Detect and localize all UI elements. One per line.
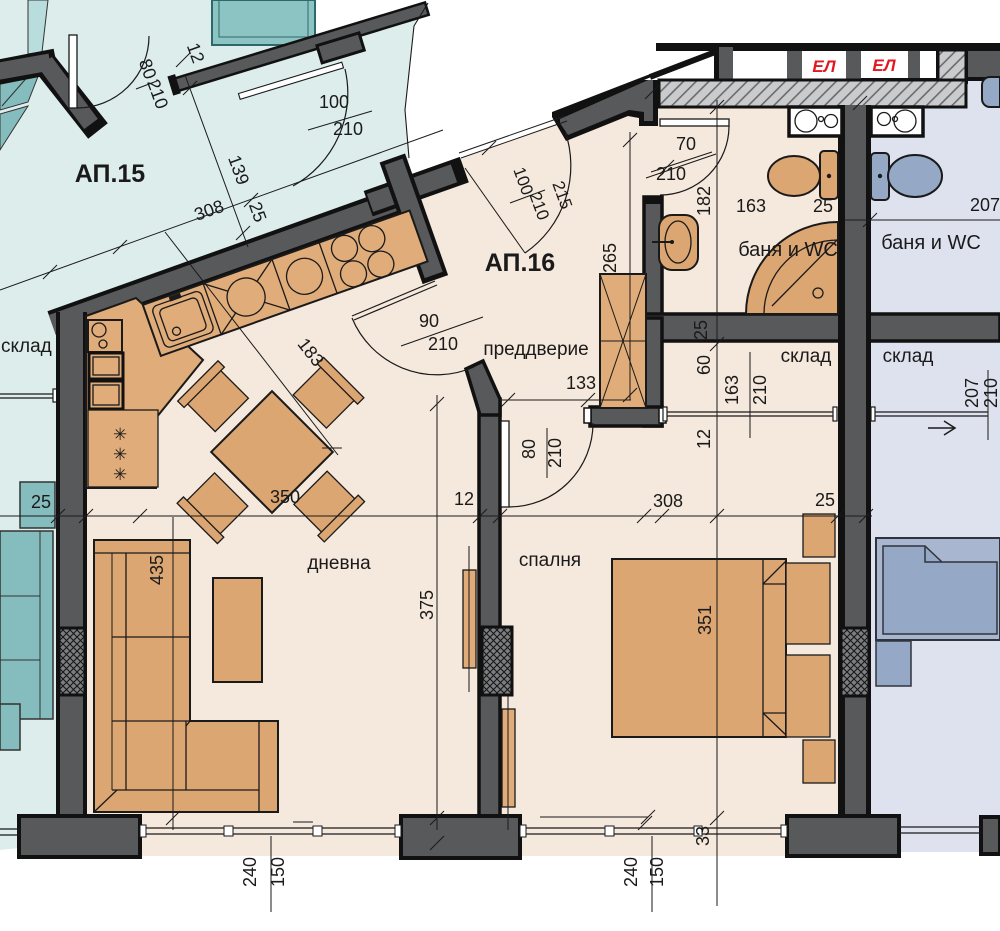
svg-text:308: 308 — [653, 491, 683, 511]
svg-text:90: 90 — [419, 311, 439, 331]
svg-text:150: 150 — [647, 857, 667, 887]
svg-text:✳: ✳ — [113, 425, 127, 444]
svg-text:✳: ✳ — [113, 465, 127, 484]
svg-text:207: 207 — [962, 378, 982, 408]
svg-text:дневна: дневна — [307, 553, 371, 574]
svg-text:спалня: спалня — [519, 550, 581, 571]
svg-text:210: 210 — [750, 375, 770, 405]
svg-text:133: 133 — [566, 373, 596, 393]
svg-text:25: 25 — [813, 196, 833, 216]
svg-text:375: 375 — [417, 590, 437, 620]
svg-text:207: 207 — [970, 195, 1000, 215]
svg-text:70: 70 — [676, 134, 696, 154]
svg-text:баня и WC: баня и WC — [738, 239, 838, 261]
svg-text:33: 33 — [693, 826, 713, 846]
svg-text:100: 100 — [319, 92, 349, 112]
svg-text:ЕЛ: ЕЛ — [812, 57, 836, 76]
svg-text:АП.16: АП.16 — [485, 249, 555, 277]
svg-text:163: 163 — [722, 375, 742, 405]
svg-text:210: 210 — [545, 438, 565, 468]
svg-text:склад: склад — [1, 336, 52, 357]
svg-text:210: 210 — [656, 164, 686, 184]
svg-text:150: 150 — [268, 857, 288, 887]
svg-text:240: 240 — [240, 857, 260, 887]
svg-text:210: 210 — [428, 334, 458, 354]
svg-text:склад: склад — [781, 346, 832, 367]
svg-text:60: 60 — [694, 355, 714, 375]
svg-text:240: 240 — [621, 857, 641, 887]
svg-text:склад: склад — [883, 346, 934, 367]
svg-text:80: 80 — [519, 439, 539, 459]
svg-text:преддверие: преддверие — [483, 339, 588, 360]
svg-text:351: 351 — [695, 605, 715, 635]
svg-text:12: 12 — [694, 429, 714, 449]
svg-text:210: 210 — [333, 119, 363, 139]
svg-text:182: 182 — [694, 186, 714, 216]
svg-text:25: 25 — [31, 492, 51, 512]
svg-text:25: 25 — [691, 320, 711, 340]
svg-text:265: 265 — [600, 243, 620, 273]
svg-text:435: 435 — [147, 555, 167, 585]
svg-text:25: 25 — [815, 490, 835, 510]
svg-text:350: 350 — [270, 487, 300, 507]
svg-text:АП.15: АП.15 — [75, 160, 146, 188]
svg-text:163: 163 — [736, 196, 766, 216]
svg-text:ЕЛ: ЕЛ — [872, 56, 896, 75]
svg-text:✳: ✳ — [113, 445, 127, 464]
svg-text:12: 12 — [454, 489, 474, 509]
svg-text:баня и WC: баня и WC — [881, 232, 981, 254]
svg-text:210: 210 — [981, 378, 1000, 408]
